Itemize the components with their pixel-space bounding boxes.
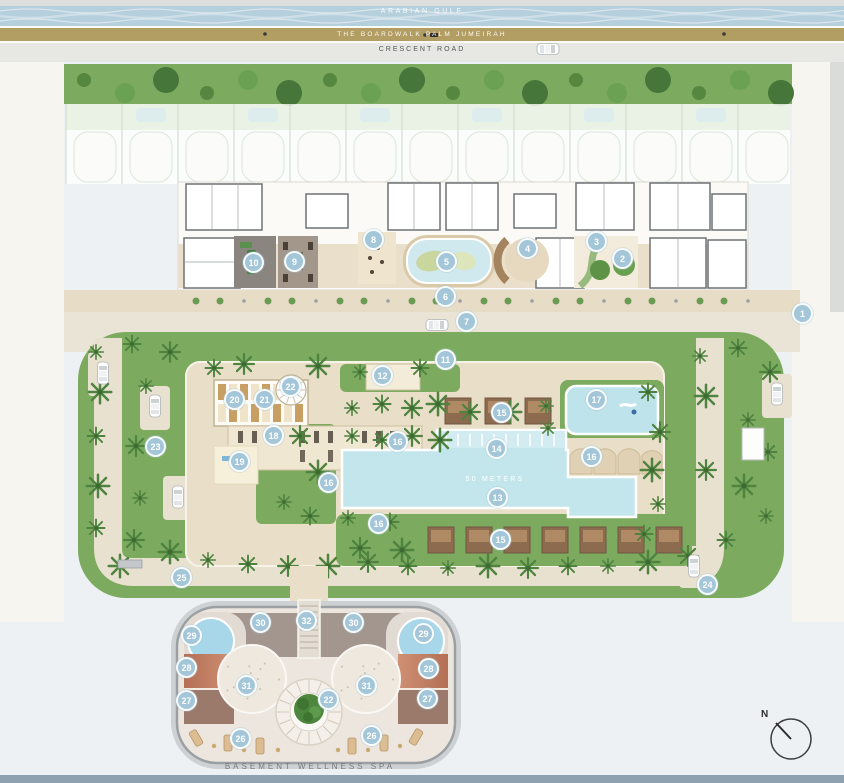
bench — [118, 560, 142, 568]
car-icon — [150, 395, 161, 417]
side-walkway — [830, 62, 844, 312]
car-icon — [426, 320, 448, 331]
ghosted-garden-units — [66, 104, 790, 184]
car-icon — [173, 486, 184, 508]
promenade — [64, 290, 800, 312]
car-icon — [772, 383, 783, 405]
bottom-bar — [0, 775, 844, 783]
spa-room-right-upper — [398, 654, 448, 689]
roadside-landscaping — [64, 64, 794, 106]
spiral-stair-deck — [276, 375, 306, 405]
compass-north-label: N — [761, 709, 768, 720]
car-icon — [689, 555, 700, 577]
main-building — [178, 182, 748, 296]
spa-title: BASEMENT WELLNESS SPA — [215, 762, 405, 771]
kids-pool — [566, 386, 658, 434]
boardwalk-label: THE BOARDWALK PALM JUMEIRAH — [0, 31, 844, 38]
crescent-road-label: CRESCENT ROAD — [0, 46, 844, 53]
arabian-gulf-label: ARABIAN GULF — [0, 8, 844, 15]
spa-room-right-lower — [398, 689, 448, 724]
spa-fan-room-right — [332, 645, 400, 713]
garden-structure — [742, 428, 764, 460]
spa-fan-room-left — [218, 645, 286, 713]
car-icon — [98, 362, 109, 384]
spa-corridor — [298, 600, 320, 658]
seating-area — [358, 232, 396, 284]
site-plan-graphic — [0, 0, 844, 783]
spiral-stair-spa — [276, 679, 342, 745]
beach-left — [0, 62, 64, 622]
compass-icon — [771, 719, 811, 759]
drop-off-court — [505, 238, 549, 282]
site-plan-page: ARABIAN GULF THE BOARDWALK PALM JUMEIRAH… — [0, 0, 844, 783]
wellness-spa — [174, 600, 458, 766]
pool-length-label: 50 METERS — [430, 476, 560, 483]
